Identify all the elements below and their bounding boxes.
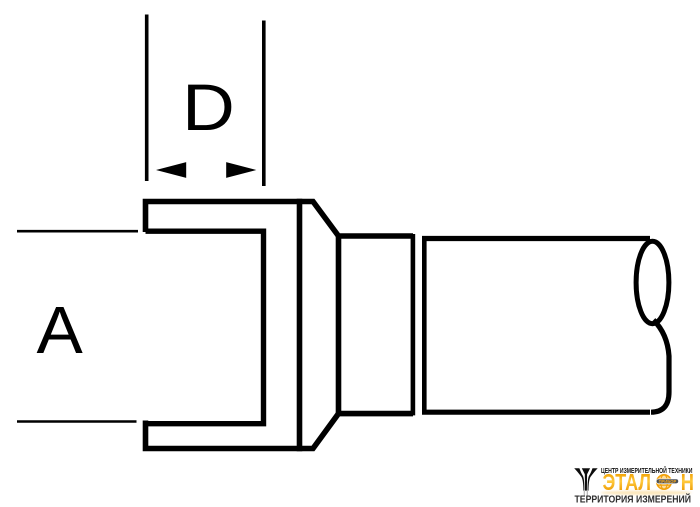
svg-text:D: D (182, 70, 235, 144)
svg-text:ТЕРРИТОРИЯ ИЗМЕРЕНИЙ: ТЕРРИТОРИЯ ИЗМЕРЕНИЙ (575, 492, 692, 505)
svg-text:ПРИБОР: ПРИБОР (659, 479, 677, 484)
svg-text:A: A (37, 293, 84, 368)
svg-text:ЭТАЛ: ЭТАЛ (603, 469, 652, 495)
svg-text:Н: Н (681, 469, 694, 495)
